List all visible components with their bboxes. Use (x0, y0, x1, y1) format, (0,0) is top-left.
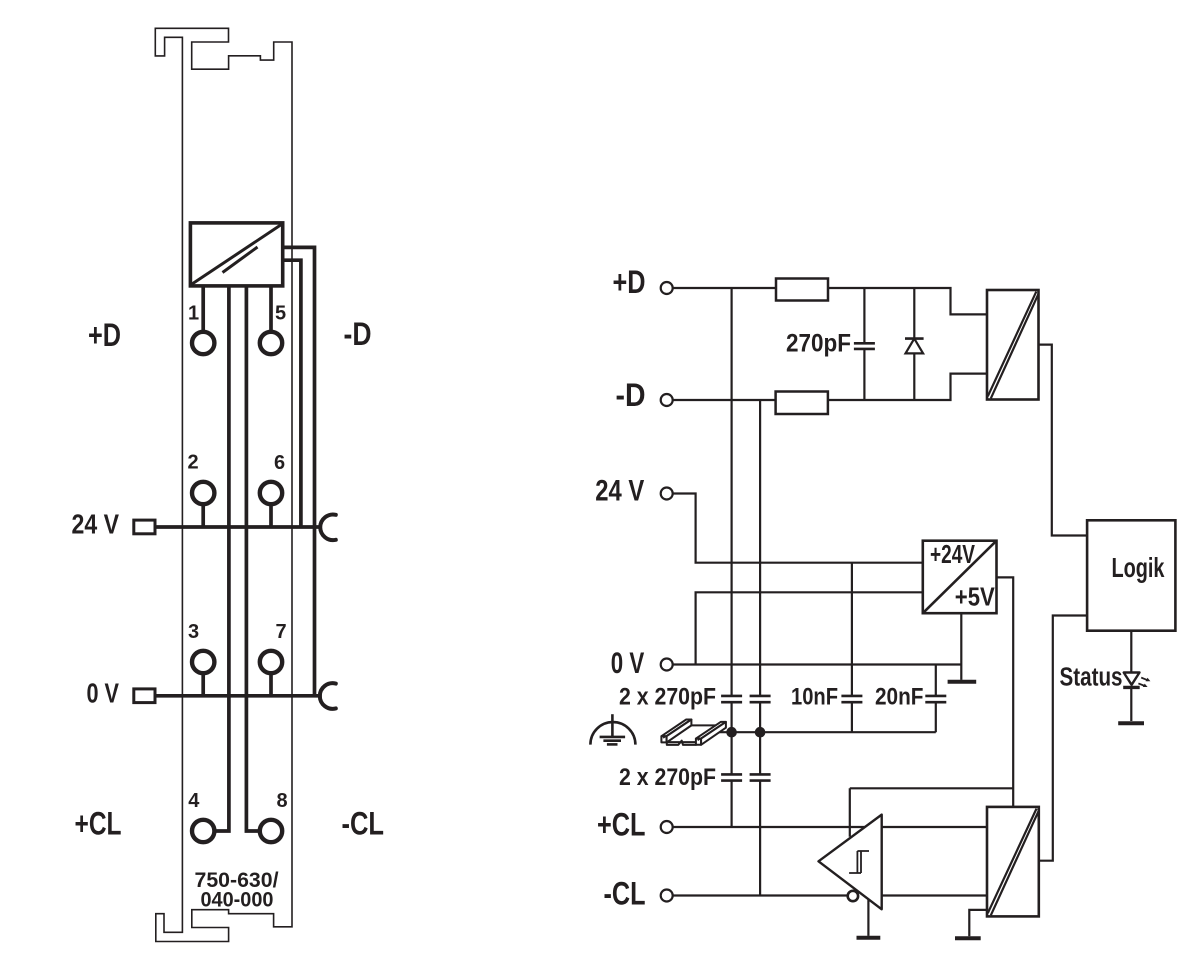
svg-text:5: 5 (275, 303, 286, 325)
svg-text:24 V: 24 V (595, 475, 644, 508)
svg-text:+5V: +5V (955, 581, 996, 611)
svg-text:040-000: 040-000 (201, 888, 274, 912)
svg-text:10nF: 10nF (791, 684, 838, 711)
svg-text:Status: Status (1060, 664, 1123, 692)
svg-text:-D: -D (344, 316, 372, 352)
svg-text:+CL: +CL (75, 806, 122, 842)
svg-text:1: 1 (188, 303, 199, 325)
svg-text:-CL: -CL (604, 876, 646, 912)
svg-text:2: 2 (187, 452, 198, 474)
svg-text:+D: +D (88, 317, 121, 353)
svg-text:+D: +D (613, 264, 646, 300)
svg-text:20nF: 20nF (875, 684, 924, 711)
svg-text:Logik: Logik (1112, 552, 1165, 583)
svg-text:8: 8 (276, 790, 287, 812)
svg-text:-CL: -CL (342, 806, 385, 842)
svg-text:270pF: 270pF (786, 330, 851, 358)
svg-text:4: 4 (188, 790, 200, 812)
svg-text:2 x 270pF: 2 x 270pF (619, 764, 716, 791)
svg-text:7: 7 (275, 621, 286, 643)
svg-text:3: 3 (188, 621, 199, 643)
svg-text:-D: -D (616, 377, 646, 413)
svg-text:+24V: +24V (930, 539, 975, 569)
svg-text:2 x 270pF: 2 x 270pF (619, 684, 716, 711)
svg-text:24 V: 24 V (72, 509, 120, 540)
svg-text:6: 6 (274, 452, 285, 474)
svg-text:0 V: 0 V (611, 647, 645, 680)
svg-text:0 V: 0 V (87, 678, 120, 709)
svg-text:+CL: +CL (597, 806, 646, 842)
